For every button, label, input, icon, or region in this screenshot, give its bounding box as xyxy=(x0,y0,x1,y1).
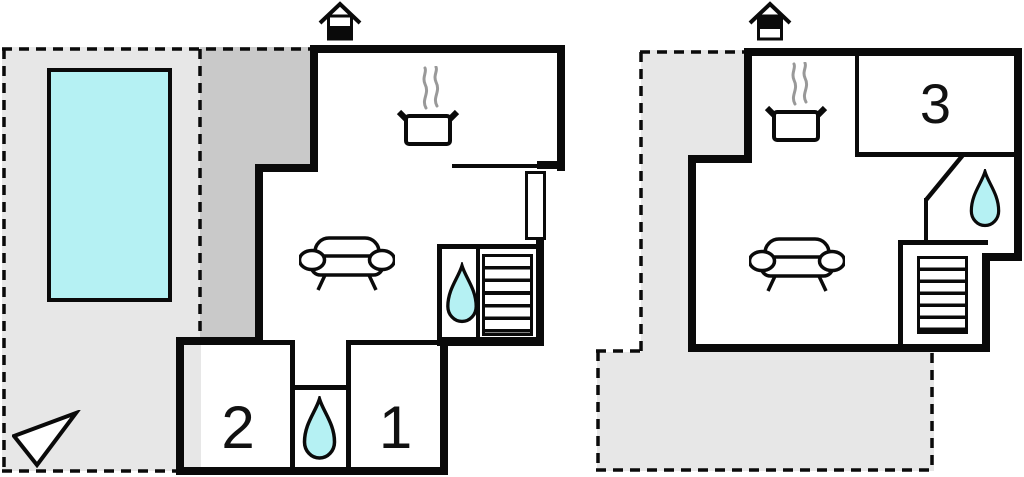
wall-hallbath-top xyxy=(290,385,351,390)
water-drop-icon xyxy=(445,262,479,328)
patio-dark-upper xyxy=(200,47,312,167)
wall-left-kitchen xyxy=(452,164,537,168)
wall-right-step xyxy=(688,155,752,163)
wall-left-bottom xyxy=(176,467,448,475)
wall-left-step xyxy=(255,164,318,172)
wall-left-corner-stub xyxy=(537,161,565,169)
wall-right-bath-vertical xyxy=(924,198,928,244)
steam-icon xyxy=(788,62,814,106)
wall-room2-top xyxy=(184,340,294,345)
ground-floor-house-icon xyxy=(318,1,362,43)
entrance-door xyxy=(525,171,546,240)
wall-right-stairsbox-top xyxy=(898,240,988,245)
wall-stairsbox-left xyxy=(437,244,442,340)
wall-left-interior-upper xyxy=(310,45,318,172)
room-2-label: 2 xyxy=(186,392,290,464)
stairs-icon xyxy=(917,256,968,334)
wall-left-right-upper xyxy=(557,45,565,171)
wall-left-left-lower xyxy=(176,337,184,475)
terrace-right-strip xyxy=(641,160,689,352)
patio-dark-lower xyxy=(200,164,259,340)
sofa-icon xyxy=(299,235,395,293)
wall-left-right-stairs xyxy=(536,239,544,343)
wall-right-top xyxy=(744,48,1022,56)
sofa-icon xyxy=(749,236,845,294)
wall-right-stairs-right xyxy=(982,253,990,352)
room-1-label: 1 xyxy=(349,392,442,464)
wall-stairsbox-top xyxy=(437,244,538,249)
wall-room1-top xyxy=(347,340,444,345)
stove-pot-icon xyxy=(764,102,828,144)
north-arrow-icon xyxy=(12,410,84,468)
water-drop-icon xyxy=(968,169,1002,231)
upper-floor-house-icon xyxy=(748,1,792,43)
wall-right-bottom xyxy=(688,344,990,352)
wall-left-top xyxy=(310,45,565,53)
water-drop-icon xyxy=(301,396,338,464)
stove-pot-icon xyxy=(396,106,460,148)
wall-right-left-lower xyxy=(688,155,696,352)
wall-room3-bottom xyxy=(855,152,1022,157)
pool xyxy=(47,68,172,302)
wall-right-left-upper xyxy=(744,48,752,163)
wall-room2-right xyxy=(290,340,295,472)
bathroom-diagonal-wall xyxy=(926,155,963,200)
wall-right-stairsbox-left xyxy=(898,240,903,348)
wall-left-interior-lower xyxy=(255,164,263,345)
room-3-label: 3 xyxy=(857,72,1014,136)
steam-icon xyxy=(419,66,445,110)
terrace-right-lower xyxy=(597,352,934,471)
stairs-icon xyxy=(482,254,533,336)
terrace-right-upper xyxy=(641,50,744,163)
wall-left-stairs-bottom xyxy=(437,337,544,346)
floor-plan-canvas: 2 1 3 xyxy=(0,0,1024,477)
